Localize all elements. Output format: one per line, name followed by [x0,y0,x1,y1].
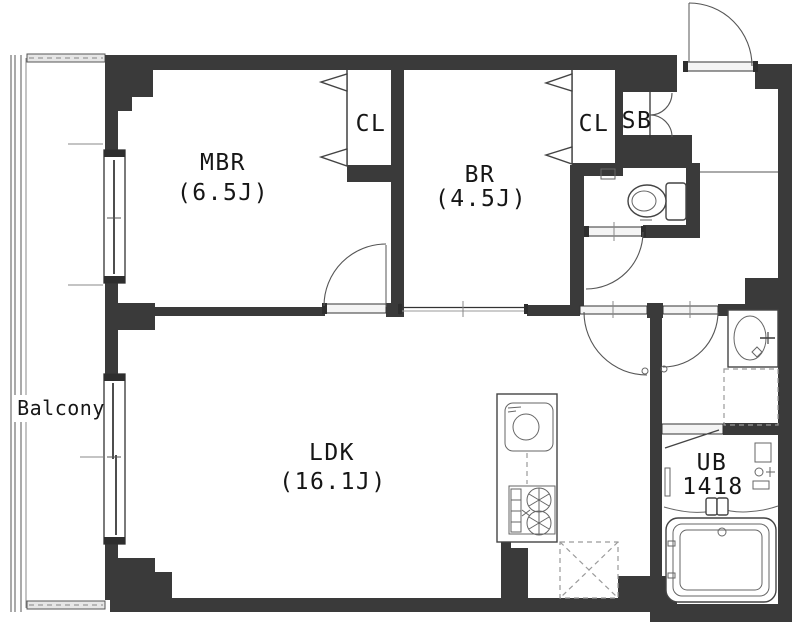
balcony [11,54,108,612]
entry-door [683,3,758,72]
closet-br-label: CL [579,111,610,137]
br-size-label: (4.5J) [435,186,527,212]
toilet-icon [601,169,686,220]
ldk-door [580,301,648,375]
mbr-size-label: (6.5J) [177,180,269,206]
ub-label: UB [697,450,728,476]
br-label: BR [465,162,496,188]
toilet-door [584,222,646,289]
ub-door [662,424,723,448]
closet-mbr [321,70,347,166]
ldk-label: LDK [309,440,355,466]
br-sliding-door [398,301,528,317]
ldk-size-label: (16.1J) [279,469,386,495]
closet-br [546,70,572,164]
washroom-door [661,301,718,372]
ub-size-label: 1418 [682,474,743,500]
balcony-label: Balcony [17,396,105,420]
shoe-box-label: SB [622,108,653,134]
window-mbr [104,150,125,283]
window-ldk [104,374,125,544]
bathtub-icon [666,518,776,602]
mbr-door [322,244,386,314]
sb-doors [650,92,672,138]
floor-plan: MBR (6.5J) BR (4.5J) LDK (16.1J) UB 1418… [0,0,800,627]
washing-machine-space [724,369,778,425]
closet-mbr-label: CL [356,111,387,137]
floor-plan-drawing: MBR (6.5J) BR (4.5J) LDK (16.1J) UB 1418… [0,0,800,627]
washbasin-icon [728,310,778,367]
mbr-label: MBR [200,150,246,176]
refrigerator-space [560,542,618,598]
